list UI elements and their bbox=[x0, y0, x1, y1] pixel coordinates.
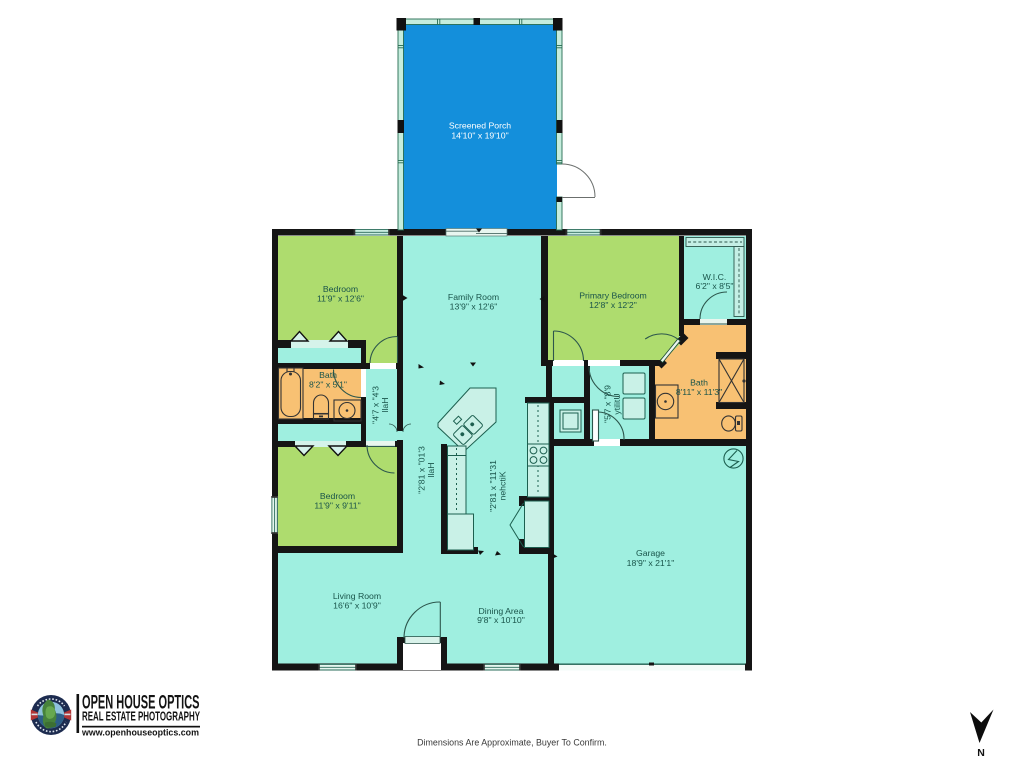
svg-text:8'11" x 11'3": 8'11" x 11'3" bbox=[676, 387, 722, 397]
svg-text:"2'81 x "11'31: "2'81 x "11'31 bbox=[488, 460, 498, 512]
svg-text:Bedroom: Bedroom bbox=[323, 284, 358, 294]
svg-text:Bedroom: Bedroom bbox=[320, 491, 355, 501]
svg-text:12'8" x 12'2": 12'8" x 12'2" bbox=[589, 300, 637, 310]
svg-text:"4'7 x "4'3: "4'7 x "4'3 bbox=[371, 386, 381, 424]
svg-text:Family Room: Family Room bbox=[448, 292, 499, 302]
svg-text:11'9" x 9'11": 11'9" x 9'11" bbox=[314, 501, 360, 511]
svg-text:N: N bbox=[977, 747, 985, 759]
svg-text:11'9" x 12'6": 11'9" x 12'6" bbox=[317, 294, 364, 304]
svg-text:REAL ESTATE PHOTOGRAPHY: REAL ESTATE PHOTOGRAPHY bbox=[82, 709, 200, 724]
svg-text:Dimensions Are Approximate, Bu: Dimensions Are Approximate, Buyer To Con… bbox=[417, 738, 607, 748]
svg-text:"2'81 x "01'3: "2'81 x "01'3 bbox=[417, 446, 427, 494]
svg-text:16'6" x 10'9": 16'6" x 10'9" bbox=[333, 601, 381, 611]
svg-text:llaH: llaH bbox=[426, 463, 436, 478]
svg-text:14'10" x 19'10": 14'10" x 19'10" bbox=[451, 131, 508, 141]
svg-text:Living Room: Living Room bbox=[333, 591, 381, 601]
svg-text:llaH: llaH bbox=[380, 398, 390, 413]
svg-text:Garage: Garage bbox=[636, 548, 665, 558]
svg-text:Bath: Bath bbox=[690, 378, 708, 388]
svg-text:8'2" x 5'1": 8'2" x 5'1" bbox=[309, 379, 347, 389]
svg-text:18'9" x 21'1": 18'9" x 21'1" bbox=[627, 558, 675, 568]
svg-text:Primary Bedroom: Primary Bedroom bbox=[579, 291, 647, 301]
svg-text:Screened Porch: Screened Porch bbox=[449, 121, 511, 131]
svg-text:13'9" x 12'6": 13'9" x 12'6" bbox=[450, 302, 498, 312]
svg-text:9'8" x 10'10": 9'8" x 10'10" bbox=[477, 615, 525, 625]
svg-text:ytilitU: ytilitU bbox=[612, 393, 622, 414]
svg-text:6'2" x 8'5": 6'2" x 8'5" bbox=[696, 281, 734, 291]
svg-text:www.openhouseoptics.com: www.openhouseoptics.com bbox=[81, 728, 199, 738]
svg-text:nehctiK: nehctiK bbox=[498, 471, 508, 500]
svg-text:"5'7 x "8'9: "5'7 x "8'9 bbox=[603, 385, 613, 423]
